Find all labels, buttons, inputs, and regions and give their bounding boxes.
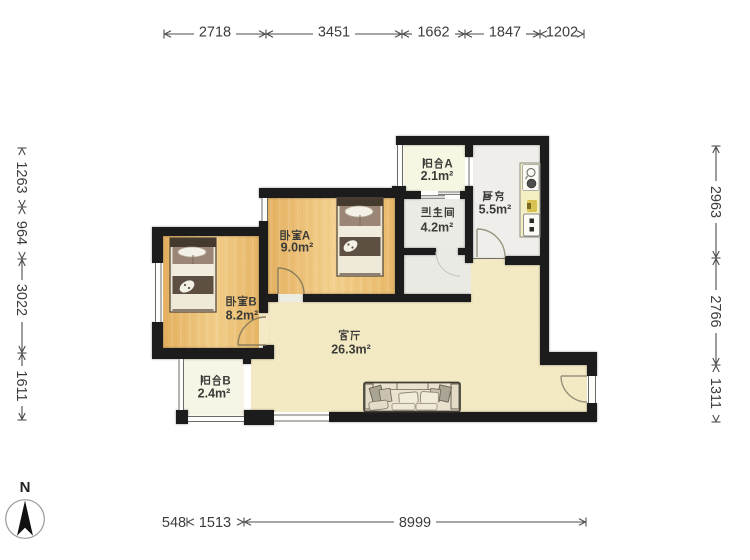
svg-text:1263: 1263 [13,161,29,193]
svg-text:2718: 2718 [199,25,231,41]
svg-text:1611: 1611 [13,370,29,401]
svg-text:26.3m²: 26.3m² [331,343,371,357]
svg-text:1847: 1847 [489,25,521,41]
svg-text:1513: 1513 [199,515,231,531]
svg-text:964: 964 [13,221,29,245]
svg-text:5.5m²: 5.5m² [479,203,512,217]
svg-text:2.1m²: 2.1m² [421,169,454,183]
svg-text:4.2m²: 4.2m² [421,221,454,235]
svg-text:3022: 3022 [13,284,29,316]
svg-text:8.2m²: 8.2m² [226,309,259,323]
svg-text:2766: 2766 [707,295,723,327]
svg-text:2963: 2963 [707,186,723,218]
svg-text:9.0m²: 9.0m² [281,241,314,255]
svg-text:B: B [248,297,256,309]
svg-text:1311: 1311 [707,378,723,409]
svg-text:548: 548 [162,515,186,531]
svg-text:N: N [20,479,31,496]
svg-text:2.4m²: 2.4m² [198,387,231,401]
svg-text:1202: 1202 [546,25,578,41]
svg-text:3451: 3451 [318,25,350,41]
svg-text:8999: 8999 [399,515,431,531]
svg-text:1662: 1662 [417,25,449,41]
